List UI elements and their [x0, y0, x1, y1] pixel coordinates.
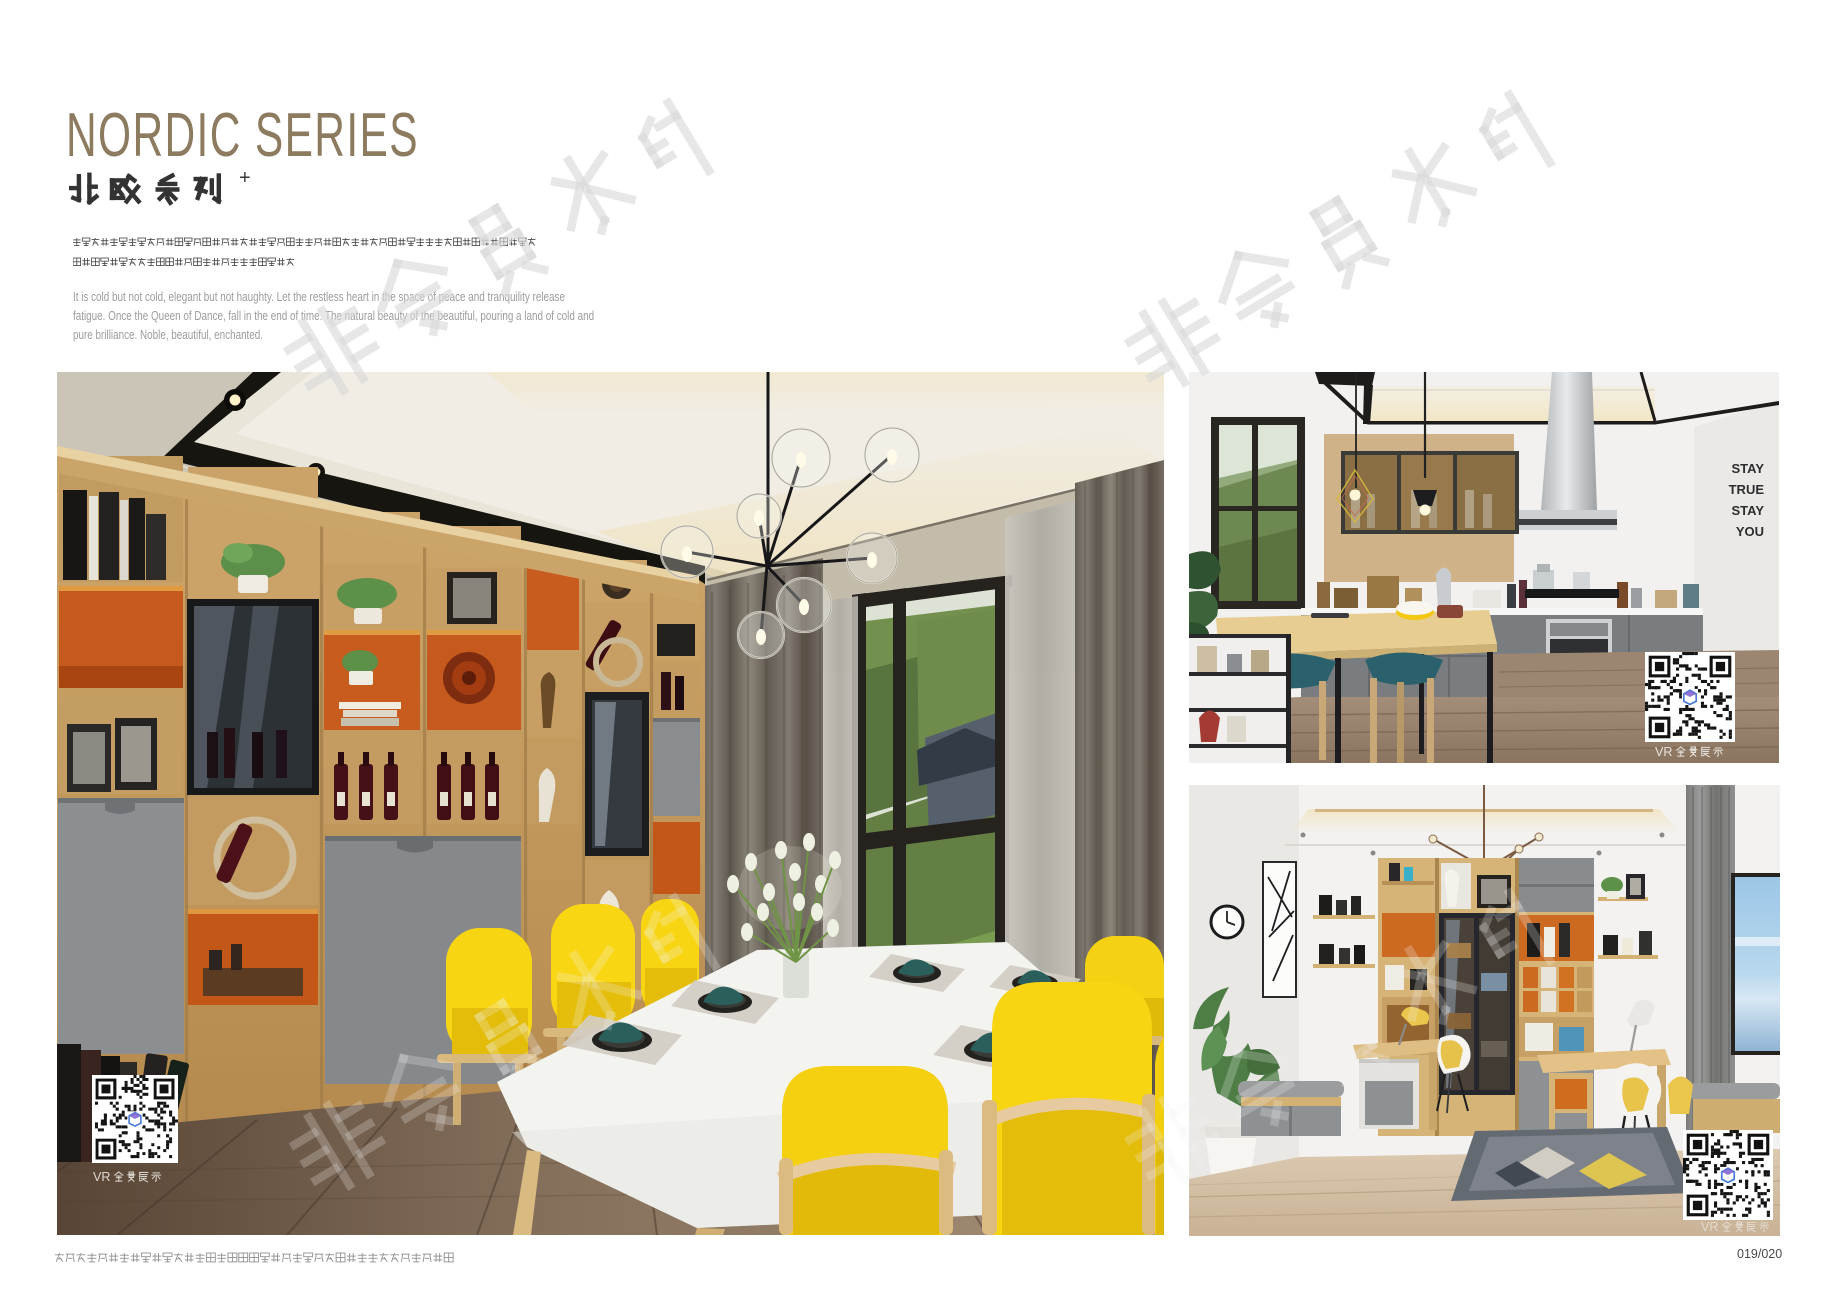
svg-text:STAY: STAY	[1731, 503, 1764, 518]
svg-text:VR: VR	[1701, 1220, 1719, 1234]
svg-text:VR: VR	[1655, 745, 1673, 759]
svg-text:TRUE: TRUE	[1729, 482, 1765, 497]
svg-text:+: +	[239, 170, 251, 189]
svg-text:YOU: YOU	[1736, 524, 1764, 539]
svg-text:STAY: STAY	[1731, 461, 1764, 476]
svg-text:VR: VR	[93, 1170, 111, 1184]
